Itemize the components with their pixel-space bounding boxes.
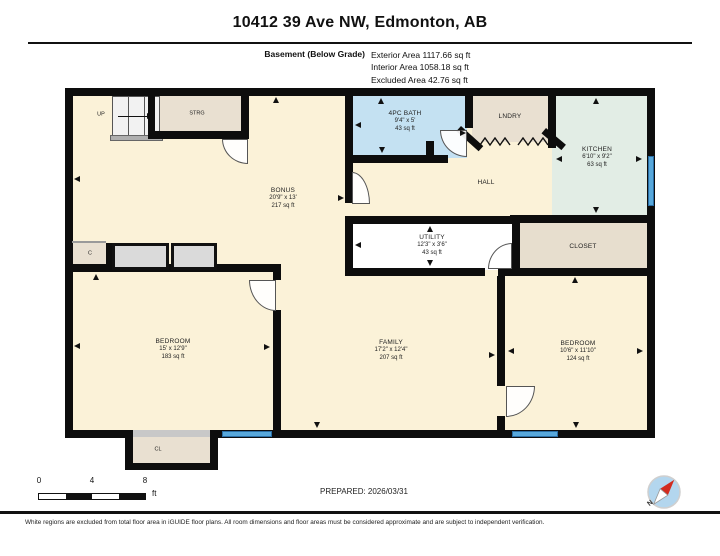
wall-storage-bottom (148, 131, 248, 139)
dimension-arrow-icon (573, 422, 579, 428)
wall-bedroom-left-right-lower (273, 310, 281, 430)
room-label-closet: CLOSET (569, 243, 596, 251)
room-label-hall: HALL (477, 179, 494, 187)
wall-utility-bottom (345, 268, 485, 276)
wall-outer-left (65, 88, 73, 438)
room-label-laundry: LNDRY (499, 113, 522, 121)
closet-cl-open-edge (133, 430, 210, 437)
wall-family-bedroom-upper (497, 276, 505, 386)
scale-tick-8: 8 (143, 476, 147, 485)
scale-unit: ft (152, 489, 156, 498)
wall-closet-bottom (498, 268, 655, 276)
bedroom-right-window (512, 431, 558, 437)
dimension-arrow-icon (264, 344, 270, 350)
room-label-closet-cl: CL (154, 446, 161, 453)
wall-bedroom-left-right-upper (273, 264, 281, 280)
kitchen-window (648, 156, 654, 206)
floor-plan: UP STRG 4PC BATH 9'4" x 5' 43 sq ft LNDR… (0, 0, 720, 556)
wall-outer-top (65, 88, 655, 96)
wall-outer-right (647, 88, 655, 438)
room-label-bedroom-right: BEDROOM 10'6" x 11'10" 124 sq ft (560, 340, 596, 364)
room-label-bonus: BONUS 20'9" x 13' 217 sq ft (269, 187, 296, 211)
bedroom-closet-box (112, 243, 169, 270)
wall-storage-right (241, 96, 249, 139)
closet-c-open-edge (72, 241, 106, 243)
dimension-arrow-icon (637, 348, 643, 354)
bottom-left-window (222, 431, 272, 437)
dimension-arrow-icon (379, 147, 385, 153)
room-label-bedroom-left: BEDROOM 15' x 12'9" 183 sq ft (156, 338, 191, 362)
dimension-arrow-icon (314, 422, 320, 428)
dimension-arrow-icon (74, 176, 80, 182)
dimension-arrow-icon (427, 226, 433, 232)
scale-tick-4: 4 (90, 476, 94, 485)
dimension-arrow-icon (273, 97, 279, 103)
room-label-storage: STRG (189, 110, 204, 117)
dimension-arrow-icon (338, 195, 344, 201)
stair-direction-arrow-icon (118, 116, 148, 117)
dimension-arrow-icon (489, 352, 495, 358)
wall-cl-bottom (125, 463, 218, 470)
dimension-arrow-icon (355, 122, 361, 128)
wall-bath-right (465, 96, 473, 128)
footer-divider (0, 511, 720, 514)
dimension-arrow-icon (74, 343, 80, 349)
dimension-arrow-icon (427, 260, 433, 266)
laundry-bifold-doors-icon (480, 137, 550, 147)
room-label-up: UP (97, 111, 105, 118)
room-label-bath: 4PC BATH 9'4" x 5' 43 sq ft (389, 110, 422, 134)
wall-family-bedroom-lower (497, 416, 505, 430)
wall-kitchen-bottom (510, 215, 655, 223)
room-label-family: FAMILY 17'2" x 12'4" 207 sq ft (375, 339, 408, 363)
bedroom-closet-box (171, 243, 217, 270)
dimension-arrow-icon (636, 156, 642, 162)
scale-bar-segments (38, 493, 146, 500)
room-label-utility: UTILITY 12'3" x 3'6" 43 sq ft (417, 234, 447, 258)
dimension-arrow-icon (460, 130, 466, 136)
room-label-closet-c: C (88, 250, 92, 257)
dimension-arrow-icon (593, 98, 599, 104)
dimension-arrow-icon (593, 207, 599, 213)
dimension-arrow-icon (378, 98, 384, 104)
dimension-arrow-icon (508, 348, 514, 354)
closet-cl-fill (133, 437, 210, 464)
dimension-arrow-icon (355, 242, 361, 248)
wall-utility-top (345, 216, 515, 224)
prepared-date: PREPARED: 2026/03/31 (320, 487, 408, 496)
floor-plan-page: 10412 39 Ave NW, Edmonton, AB Basement (… (0, 0, 720, 556)
wall-utility-left (345, 216, 353, 276)
footer-disclaimer: White regions are excluded from total fl… (25, 519, 544, 526)
dimension-arrow-icon (572, 277, 578, 283)
wall-utility-closet (512, 216, 520, 276)
dimension-arrow-icon (93, 274, 99, 280)
wall-bath-stub (426, 141, 434, 163)
scale-tick-0: 0 (37, 476, 41, 485)
dimension-arrow-icon (556, 156, 562, 162)
room-label-kitchen: KITCHEN 6'10" x 9'2" 63 sq ft (582, 146, 612, 170)
